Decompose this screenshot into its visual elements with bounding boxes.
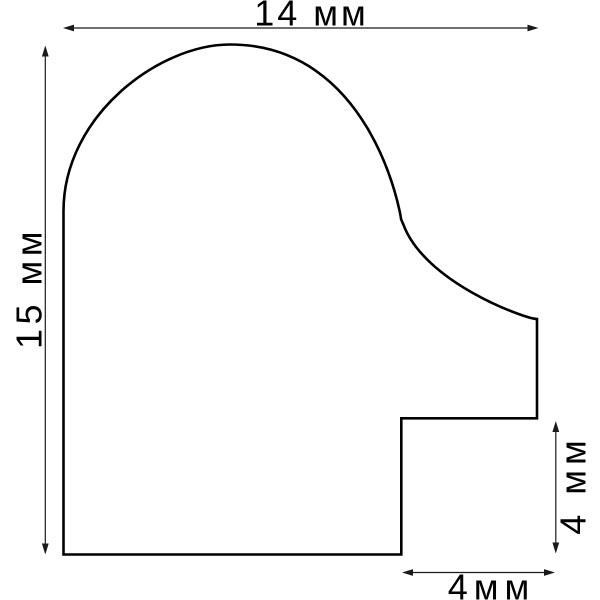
svg-text:4мм: 4мм (448, 567, 536, 600)
svg-text:15 мм: 15 мм (9, 227, 50, 349)
svg-text:4 мм: 4 мм (553, 435, 594, 535)
svg-text:14 мм: 14 мм (254, 0, 369, 34)
